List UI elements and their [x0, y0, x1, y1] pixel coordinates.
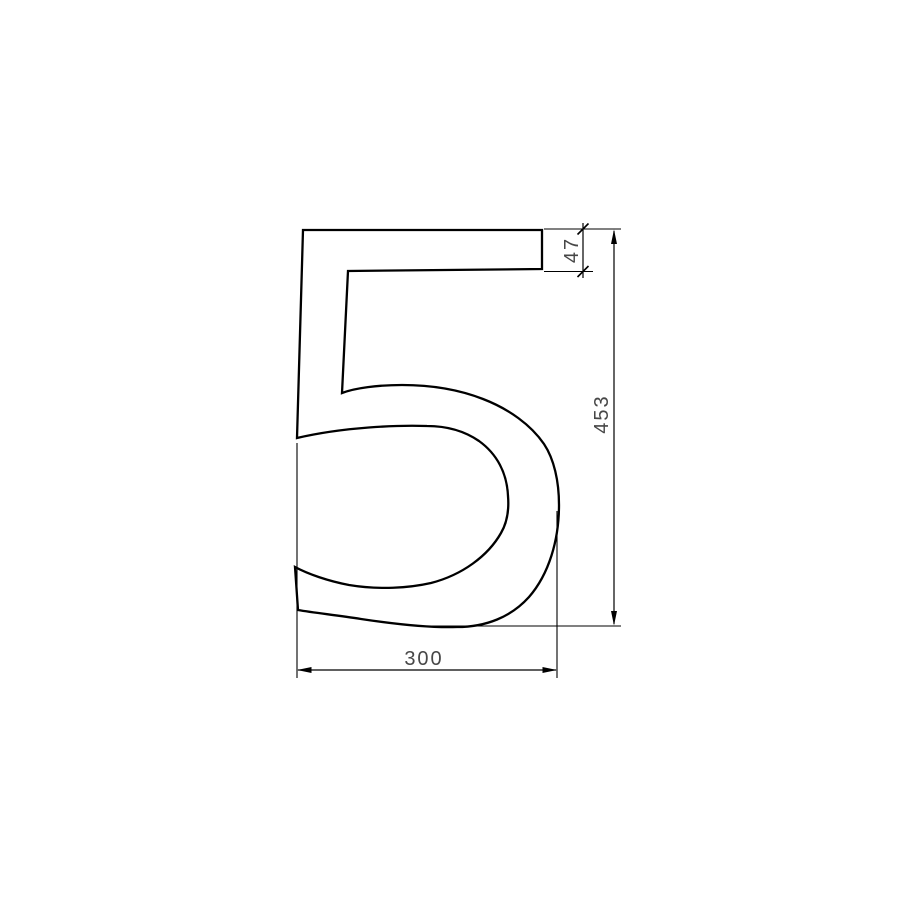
- digit-5-path: [295, 230, 559, 627]
- arrowhead-down: [611, 611, 617, 626]
- dimension-value-300: 300: [404, 648, 443, 670]
- dimension-value-47: 47: [561, 237, 583, 263]
- digit-5-outline: [295, 230, 559, 627]
- dimension-bar-thickness: 47: [544, 223, 621, 278]
- dimension-value-453: 453: [591, 394, 613, 433]
- technical-drawing-canvas: 47 453 300: [0, 0, 900, 900]
- drawing-page: 47 453 300: [0, 0, 900, 900]
- arrowhead-left: [297, 667, 312, 673]
- arrowhead-up: [611, 230, 617, 245]
- arrowhead-right: [543, 667, 558, 673]
